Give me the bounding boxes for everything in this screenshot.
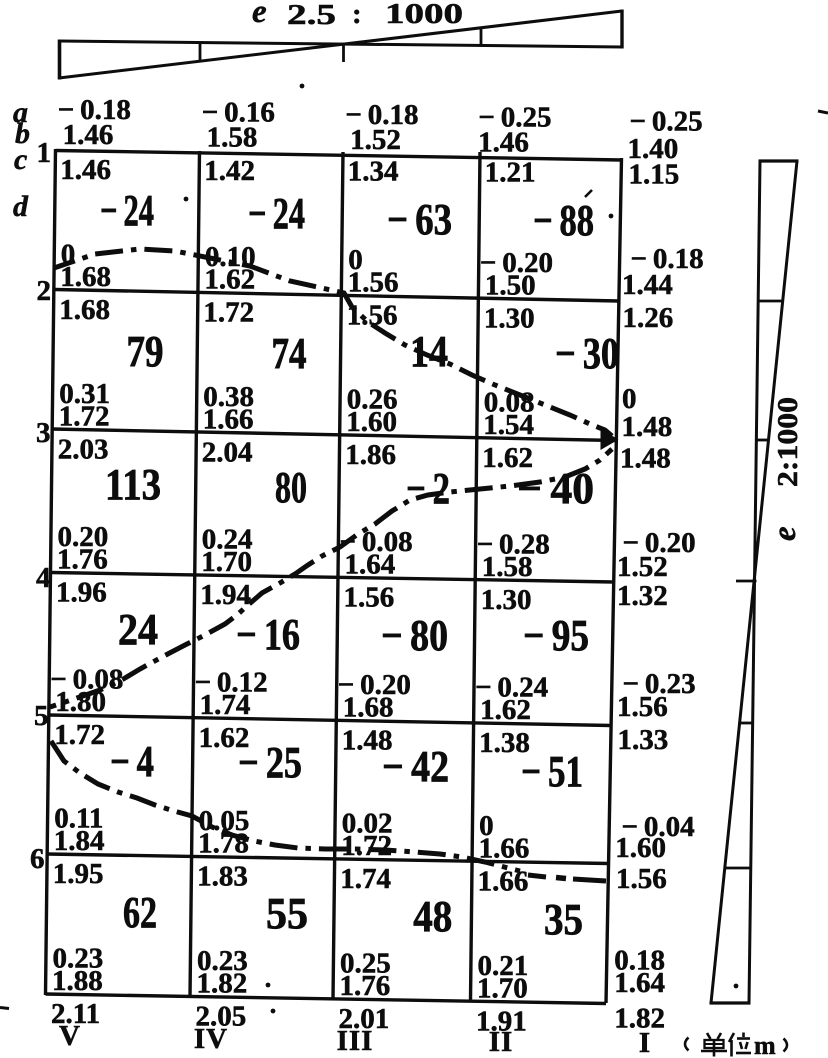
- svg-text:1.33: 1.33: [618, 724, 669, 756]
- svg-text:62: 62: [123, 888, 157, 937]
- svg-text:− 24: − 24: [100, 186, 154, 235]
- svg-text:1.54: 1.54: [483, 409, 534, 441]
- svg-text:− 51: − 51: [521, 747, 583, 796]
- svg-text:1.86: 1.86: [345, 439, 396, 471]
- svg-text:1.58: 1.58: [207, 122, 258, 154]
- svg-text:− 63: − 63: [387, 195, 452, 244]
- svg-text:1.52: 1.52: [350, 124, 401, 156]
- svg-text:35: 35: [544, 895, 583, 944]
- svg-text:− 80: − 80: [381, 611, 448, 660]
- svg-text:2:1000: 2:1000: [772, 397, 804, 487]
- svg-text:1.95: 1.95: [53, 858, 104, 890]
- svg-text:1.42: 1.42: [204, 155, 255, 187]
- svg-text:1.84: 1.84: [54, 825, 105, 857]
- svg-text:48: 48: [413, 892, 452, 941]
- svg-text:d: d: [13, 190, 29, 223]
- svg-text:1.30: 1.30: [484, 302, 535, 334]
- svg-text:IV: IV: [194, 1023, 228, 1055]
- svg-text:1.56: 1.56: [344, 582, 395, 614]
- svg-text:1.50: 1.50: [485, 269, 536, 301]
- svg-text:74: 74: [272, 329, 307, 378]
- svg-text:− 30: − 30: [555, 329, 619, 378]
- svg-text:− 24: − 24: [248, 189, 305, 238]
- svg-text:− 42: − 42: [382, 742, 449, 791]
- svg-text:m: m: [754, 1031, 776, 1058]
- svg-text:1.82: 1.82: [197, 968, 248, 1000]
- svg-text:1.76: 1.76: [340, 970, 391, 1002]
- svg-text:2.03: 2.03: [58, 433, 109, 465]
- svg-text:− 95: − 95: [523, 611, 589, 660]
- svg-text:1000: 1000: [385, 0, 463, 30]
- svg-text:4: 4: [36, 562, 51, 594]
- svg-text:1.74: 1.74: [340, 863, 391, 895]
- svg-text:− 2: − 2: [406, 464, 450, 513]
- svg-text:III: III: [337, 1025, 374, 1057]
- svg-text:1.44: 1.44: [622, 269, 673, 301]
- svg-text:c: c: [14, 143, 27, 176]
- svg-text:1.48: 1.48: [620, 443, 671, 475]
- svg-text:2: 2: [37, 275, 52, 307]
- svg-text:1.66: 1.66: [479, 832, 530, 864]
- svg-text:1.76: 1.76: [57, 544, 108, 576]
- svg-text:1.56: 1.56: [616, 863, 667, 895]
- svg-text:1.72: 1.72: [341, 830, 392, 862]
- svg-text:− 4: − 4: [110, 737, 154, 786]
- svg-text:1.46: 1.46: [63, 119, 114, 151]
- svg-text:1.46: 1.46: [60, 154, 111, 186]
- svg-text:113: 113: [105, 460, 161, 509]
- svg-text:1.60: 1.60: [346, 406, 397, 438]
- svg-text:1.34: 1.34: [348, 156, 399, 188]
- svg-text:1.15: 1.15: [629, 159, 680, 191]
- svg-text:V: V: [59, 1020, 81, 1052]
- svg-text:e: e: [767, 526, 803, 541]
- svg-text:1.48: 1.48: [622, 411, 673, 443]
- svg-text:3: 3: [36, 417, 51, 449]
- svg-text:1.66: 1.66: [203, 403, 254, 435]
- svg-text:I: I: [639, 1027, 651, 1058]
- svg-text:1.88: 1.88: [52, 965, 103, 997]
- svg-text:1.72: 1.72: [54, 719, 105, 751]
- svg-text:2.04: 2.04: [202, 436, 253, 468]
- svg-text:1.62: 1.62: [204, 264, 255, 296]
- svg-text:1.46: 1.46: [478, 126, 529, 158]
- svg-text:1.83: 1.83: [197, 861, 248, 893]
- svg-text:1: 1: [37, 137, 52, 169]
- svg-text:79: 79: [127, 327, 164, 376]
- svg-text:1.94: 1.94: [200, 579, 251, 611]
- svg-text:2.5: 2.5: [287, 0, 336, 31]
- svg-text:24: 24: [118, 605, 158, 654]
- svg-text:1.32: 1.32: [617, 580, 668, 612]
- svg-text:1.64: 1.64: [345, 549, 396, 581]
- svg-text:1.70: 1.70: [477, 972, 528, 1004]
- svg-text:1.52: 1.52: [617, 551, 668, 583]
- svg-text:1.64: 1.64: [614, 967, 665, 999]
- svg-text:1.56: 1.56: [348, 267, 399, 299]
- svg-text:1.60: 1.60: [615, 832, 666, 864]
- svg-text:− 25: − 25: [238, 738, 302, 787]
- svg-text:6: 6: [30, 843, 45, 875]
- svg-text:1.72: 1.72: [203, 297, 254, 329]
- svg-text:55: 55: [266, 889, 308, 938]
- svg-text::: :: [352, 0, 362, 30]
- svg-text:e: e: [252, 0, 267, 30]
- svg-text:5: 5: [34, 700, 49, 732]
- svg-text:1.70: 1.70: [201, 546, 252, 578]
- svg-text:1.96: 1.96: [56, 577, 107, 609]
- svg-text:1.21: 1.21: [485, 157, 536, 189]
- svg-text:80: 80: [275, 463, 307, 512]
- svg-text:1.26: 1.26: [623, 302, 674, 334]
- svg-text:1.68: 1.68: [59, 294, 110, 326]
- svg-text:1.68: 1.68: [343, 692, 394, 724]
- svg-text:1.56: 1.56: [617, 691, 668, 723]
- svg-text:1.62: 1.62: [480, 694, 531, 726]
- svg-text:− 16: − 16: [236, 610, 300, 659]
- svg-text:1.74: 1.74: [200, 689, 251, 721]
- svg-text:1.66: 1.66: [478, 865, 529, 897]
- svg-text:II: II: [489, 1026, 514, 1058]
- svg-text:1.58: 1.58: [482, 551, 533, 583]
- svg-text:− 88: − 88: [533, 196, 594, 245]
- svg-text:1.72: 1.72: [59, 400, 110, 432]
